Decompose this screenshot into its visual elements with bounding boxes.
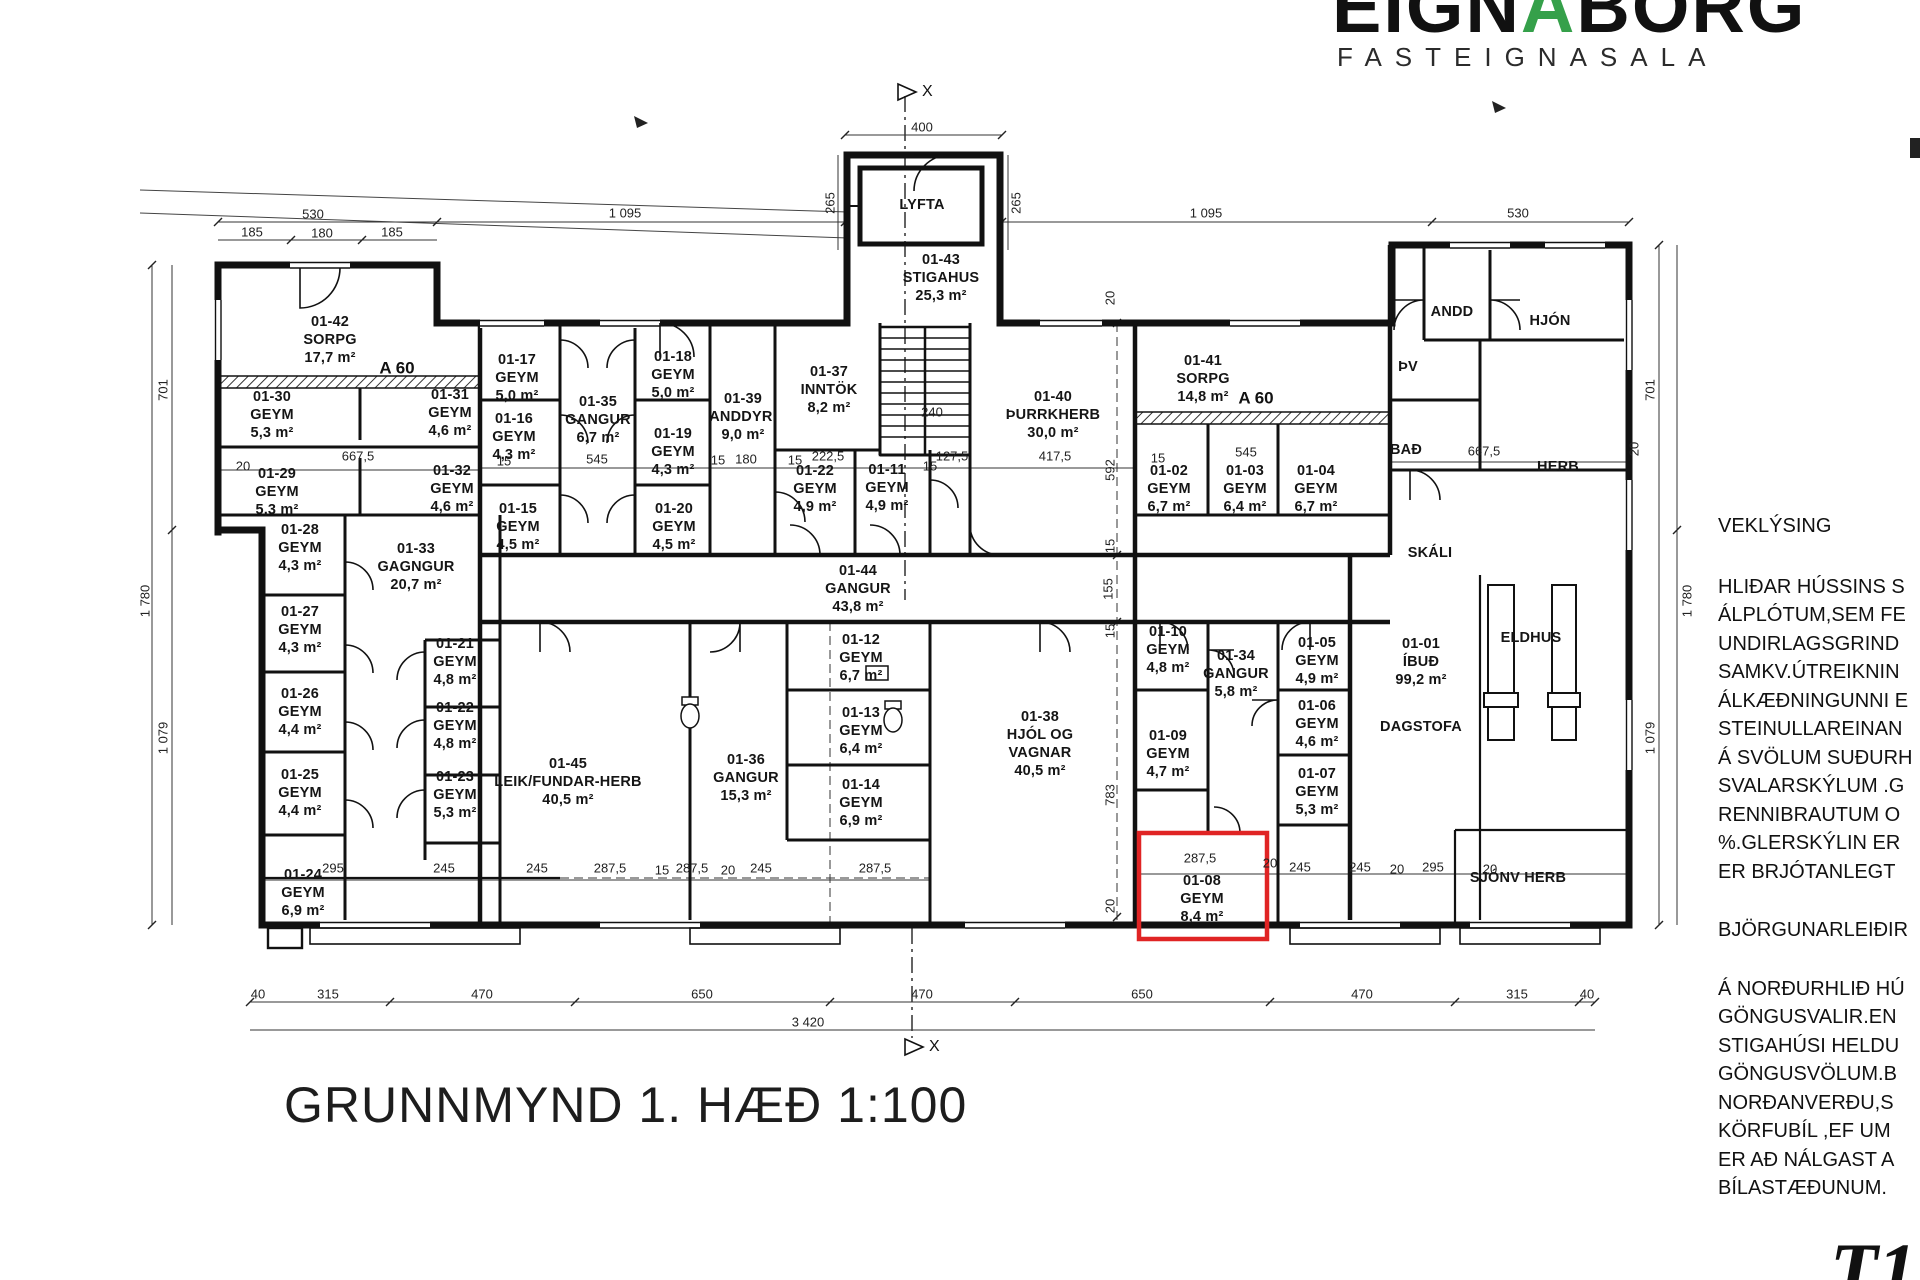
room-label-01-34: 01-34GANGUR5,8 m² [1203, 647, 1269, 701]
notes-line: UNDIRLAGSGRIND [1718, 630, 1920, 659]
dim-label: 20 [1104, 899, 1117, 913]
dim-label: 15 [1104, 624, 1117, 638]
room-label-01-12: 01-12GEYM6,7 m² [839, 631, 883, 685]
room-label-01-38: 01-38HJÓL OG VAGNAR40,5 m² [990, 708, 1090, 781]
dim-label: 20 [1390, 863, 1404, 876]
dim-label: 287,5 [594, 862, 627, 875]
dim-label: 1 780 [1681, 585, 1694, 618]
room-label-01-29: 01-29GEYM5,3 m² [255, 465, 299, 519]
room-label-01-19: 01-19GEYM4,3 m² [651, 425, 695, 479]
room-label-01-14: 01-14GEYM6,9 m² [839, 776, 883, 830]
dim-label: 240 [921, 406, 943, 419]
room-label-herb: HERB [1537, 458, 1579, 476]
room-label-bad: BAÐ [1390, 441, 1422, 459]
room-label-01-03: 01-03GEYM6,4 m² [1223, 462, 1267, 516]
room-label-01-13: 01-13GEYM6,4 m² [839, 704, 883, 758]
logo-subtitle: FASTEIGNASALA [1337, 44, 1718, 70]
dim-label: 15 [655, 864, 669, 877]
notes-line: ÁLKÆÐNINGUNNI E [1718, 687, 1920, 716]
dim-label: 470 [1351, 988, 1373, 1001]
dim-label: 15 [711, 454, 725, 467]
room-label-01-26: 01-26GEYM4,4 m² [278, 685, 322, 739]
room-label-01-18: 01-18GEYM5,0 m² [651, 348, 695, 402]
floorplan-sheet: EIGNABORG FASTEIGNASALA GRUNNMYND 1. HÆÐ… [0, 0, 1920, 1280]
room-label-01-01: 01-01ÍBUÐ99,2 m² [1395, 635, 1446, 689]
dim-label: 470 [911, 988, 933, 1001]
room-label-01-20: 01-20GEYM4,5 m² [652, 500, 696, 554]
dim-label: 650 [1131, 988, 1153, 1001]
dim-label: 701 [157, 379, 170, 401]
dim-label: 650 [691, 988, 713, 1001]
room-label-01-22-center: 01-22GEYM4,9 m² [793, 462, 837, 516]
section-cut-line [905, 96, 912, 1038]
zone-label-a60-right: A 60 [1238, 390, 1273, 407]
room-label-01-05: 01-05GEYM4,9 m² [1295, 634, 1339, 688]
room-label-01-43: 01-43STIGAHUS25,3 m² [903, 251, 980, 305]
room-label-01-08-highlighted: 01-08GEYM8,4 m² [1180, 872, 1224, 926]
dim-label: 667,5 [1468, 445, 1501, 458]
notes-heading-veklysing: VEKLÝSING [1718, 512, 1920, 541]
notes-line: KÖRFUBÍL ,EF UM [1718, 1117, 1920, 1146]
dim-label: 20 [721, 864, 735, 877]
dim-label: 40 [1580, 988, 1594, 1001]
eignaborg-logo: EIGNABORG [1332, 0, 1806, 44]
dim-label: 3 420 [792, 1016, 825, 1029]
dim-label: 265 [824, 192, 837, 214]
section-marker-x-top: X [922, 84, 933, 100]
dim-label: 180 [735, 453, 757, 466]
hatch-band-a60-right [1135, 412, 1390, 424]
dim-label: 1 079 [157, 722, 170, 755]
dim-label: 40 [251, 988, 265, 1001]
dim-label: 185 [241, 226, 263, 239]
dim-label: 20 [1104, 291, 1117, 305]
room-label-01-41: 01-41SORPG14,8 m² [1176, 352, 1229, 406]
room-label-eldhus: ELDHUS [1501, 629, 1562, 647]
dim-label: 20 [1263, 857, 1277, 870]
dim-label: 592 [1104, 459, 1117, 481]
dim-label: 667,5 [342, 450, 375, 463]
dim-label: 315 [1506, 988, 1528, 1001]
dim-label: 1 079 [1644, 722, 1657, 755]
dim-label: 15 [1104, 539, 1117, 553]
dim-label: 530 [302, 208, 324, 221]
dim-label: 20 [1628, 442, 1641, 456]
logo-accent-letter: A [1521, 0, 1576, 48]
dim-label: 265 [1010, 192, 1023, 214]
notes-line: Á SVÖLUM SUÐURH [1718, 744, 1920, 773]
room-label-01-21: 01-21GEYM4,8 m² [433, 635, 477, 689]
dim-label: 127,5 [936, 450, 969, 463]
kitchen-counters [1484, 585, 1580, 740]
room-label-01-35: 01-35GANGUR6,7 m² [565, 393, 631, 447]
dim-label: 417,5 [1039, 450, 1072, 463]
room-label-dagstofa: DAGSTOFA [1380, 718, 1462, 736]
notes-line: SVALARSKÝLUM .G [1718, 772, 1920, 801]
room-label-01-44: 01-44GANGUR43,8 m² [825, 562, 891, 616]
room-label-01-09: 01-09GEYM4,7 m² [1146, 727, 1190, 781]
room-label-01-37: 01-37INNTÖK8,2 m² [801, 363, 858, 417]
dim-label: 295 [322, 862, 344, 875]
room-label-andd: ANDD [1431, 303, 1474, 321]
notes-line: RENNIBRAUTUM O [1718, 801, 1920, 830]
dim-label: 1 780 [139, 585, 152, 618]
dim-label: 545 [586, 453, 608, 466]
dim-label: 287,5 [1184, 852, 1217, 865]
room-label-01-30: 01-30GEYM5,3 m² [250, 388, 294, 442]
dim-label: 783 [1104, 784, 1117, 806]
room-label-lyfta: LYFTA [899, 196, 944, 214]
dim-label: 295 [1422, 861, 1444, 874]
dim-label: 315 [317, 988, 339, 1001]
dim-label: 15 [788, 454, 802, 467]
room-label-01-24: 01-24GEYM6,9 m² [281, 866, 325, 920]
room-label-hjon: HJÓN [1529, 312, 1570, 330]
room-label-01-27: 01-27GEYM4,3 m² [278, 603, 322, 657]
dim-label: 180 [311, 227, 333, 240]
room-label-01-28: 01-28GEYM4,3 m² [278, 521, 322, 575]
notes-line: ER AÐ NÁLGAST A [1718, 1146, 1920, 1175]
zone-label-a60-left: A 60 [379, 360, 414, 377]
notes-line: NORÐANVERÐU,S [1718, 1089, 1920, 1118]
room-label-01-11: 01-11GEYM4,9 m² [865, 461, 909, 515]
notes-line: SAMKV.ÚTREIKNIN [1718, 658, 1920, 687]
dim-label: 701 [1644, 379, 1657, 401]
notes-line: GÖNGUSVALIR.EN [1718, 1003, 1920, 1032]
dim-label: 222,5 [812, 450, 845, 463]
room-label-01-33: 01-33GAGNGUR20,7 m² [377, 540, 454, 594]
room-label-01-42: 01-42SORPG17,7 m² [303, 313, 356, 367]
dim-label: 15 [1151, 452, 1165, 465]
dim-label: 1 095 [1190, 207, 1223, 220]
room-label-01-22-left: 01-22GEYM4,8 m² [433, 699, 477, 753]
dim-label: 155 [1102, 578, 1115, 600]
room-label-01-17: 01-17GEYM5,0 m² [495, 351, 539, 405]
dim-label: 245 [1349, 861, 1371, 874]
sheet-title: GRUNNMYND 1. HÆÐ 1:100 [284, 1078, 967, 1133]
dim-label: 245 [750, 862, 772, 875]
room-label-01-10: 01-10GEYM4,8 m² [1146, 623, 1190, 677]
room-label-thv: ÞV [1398, 358, 1418, 376]
dim-label: 400 [911, 121, 933, 134]
dim-label: 15 [497, 455, 511, 468]
notes-line: ER BRJÓTANLEGT [1718, 858, 1920, 887]
dim-label: 470 [471, 988, 493, 1001]
specification-notes: VEKLÝSING HLIÐAR HÚSSINS S ÁLPLÓTUM,SEM … [1718, 512, 1920, 1203]
dim-label: 1 095 [609, 207, 642, 220]
entrance-bays [268, 928, 1600, 948]
room-label-01-32: 01-32GEYM4,6 m² [430, 462, 474, 516]
dim-label: 20 [236, 460, 250, 473]
scan-specks [634, 101, 1920, 158]
room-label-01-39: 01-39ANDDYRI9,0 m² [709, 390, 776, 444]
dim-label: 245 [526, 862, 548, 875]
dim-label: 245 [433, 862, 455, 875]
room-label-skali: SKÁLI [1408, 544, 1453, 562]
dim-label: 287,5 [676, 862, 709, 875]
notes-line: GÖNGUSVÖLUM.B [1718, 1060, 1920, 1089]
dim-label: 20 [1483, 863, 1497, 876]
notes-line: BÍLASTÆÐUNUM. [1718, 1174, 1920, 1203]
room-label-01-15: 01-15GEYM4,5 m² [496, 500, 540, 554]
room-label-01-23: 01-23GEYM5,3 m² [433, 768, 477, 822]
notes-line: STIGAHÚSI HELDU [1718, 1032, 1920, 1061]
room-label-01-45: 01-45LEIK/FUNDAR-HERB40,5 m² [494, 755, 641, 809]
dim-label: 530 [1507, 207, 1529, 220]
notes-line: Á NORÐURHLIÐ HÚ [1718, 975, 1920, 1004]
room-label-01-02: 01-02GEYM6,7 m² [1147, 462, 1191, 516]
notes-heading-bjorgunarleidir: BJÖRGUNARLEIÐIR [1718, 916, 1920, 945]
notes-line: ÁLPLÓTUM,SEM FE [1718, 601, 1920, 630]
room-label-01-31: 01-31GEYM4,6 m² [428, 386, 472, 440]
dim-label: 185 [381, 226, 403, 239]
section-cut-markers [898, 84, 923, 1055]
staircase-01-43 [880, 327, 970, 455]
room-label-01-07: 01-07GEYM5,3 m² [1295, 765, 1339, 819]
notes-line: HLIÐAR HÚSSINS S [1718, 573, 1920, 602]
dim-label: 287,5 [859, 862, 892, 875]
dim-label: 545 [1235, 446, 1257, 459]
section-marker-x-bottom: X [929, 1039, 940, 1055]
notes-line: %.GLERSKÝLIN ER [1718, 829, 1920, 858]
room-label-01-36: 01-36GANGUR15,3 m² [713, 751, 779, 805]
room-label-01-06: 01-06GEYM4,6 m² [1295, 697, 1339, 751]
room-label-01-40: 01-40ÞURRKHERB30,0 m² [1006, 388, 1100, 442]
room-label-01-04: 01-04GEYM6,7 m² [1294, 462, 1338, 516]
notes-line: STEINULLAREINAN [1718, 715, 1920, 744]
corner-stamp-logo: T1 [1830, 1232, 1917, 1280]
room-label-01-25: 01-25GEYM4,4 m² [278, 766, 322, 820]
dim-label: 245 [1289, 861, 1311, 874]
